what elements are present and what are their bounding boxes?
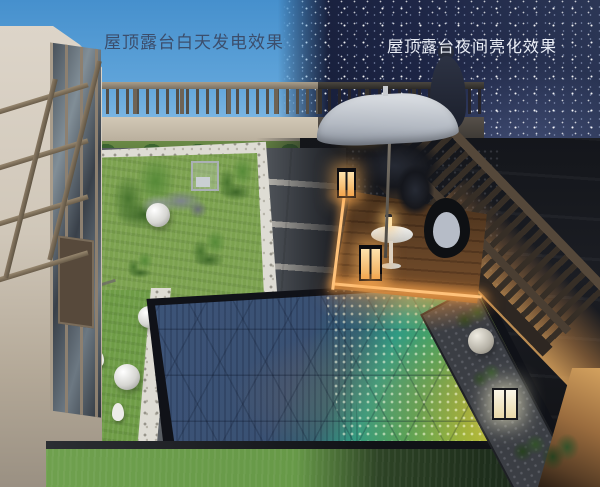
chair-cushion (433, 212, 460, 248)
railing-balusters (86, 89, 318, 114)
small-plant (124, 248, 156, 280)
caption-daytime-power-generation: 屋顶露台白天发电效果 (104, 28, 284, 53)
terrace-door (58, 235, 94, 328)
wood-railing-day (86, 82, 318, 118)
caption-night-lighting: 屋顶露台夜间亮化效果 (387, 33, 557, 57)
night-plant (536, 428, 584, 476)
chair-seat (196, 177, 210, 187)
table-base (381, 263, 401, 269)
deck-light-pool (318, 292, 502, 334)
table-stem (389, 241, 393, 265)
garden-cube-lantern (492, 388, 518, 420)
shrub-plant (188, 224, 230, 270)
sphere-ornament (146, 203, 170, 227)
shrub-plant (214, 150, 258, 204)
lantern-light-pool (346, 274, 396, 294)
lantern-light-pool (324, 190, 368, 208)
rabbit-figurine (112, 403, 124, 421)
chair-sculpture (191, 161, 219, 191)
sphere-ornament (114, 364, 140, 390)
rooftop-terrace-day-night-rendering: 屋顶露台白天发电效果 屋顶露台夜间亮化效果 (0, 0, 600, 487)
umbrella-finial (383, 86, 388, 96)
railing-top-rail (86, 82, 318, 89)
